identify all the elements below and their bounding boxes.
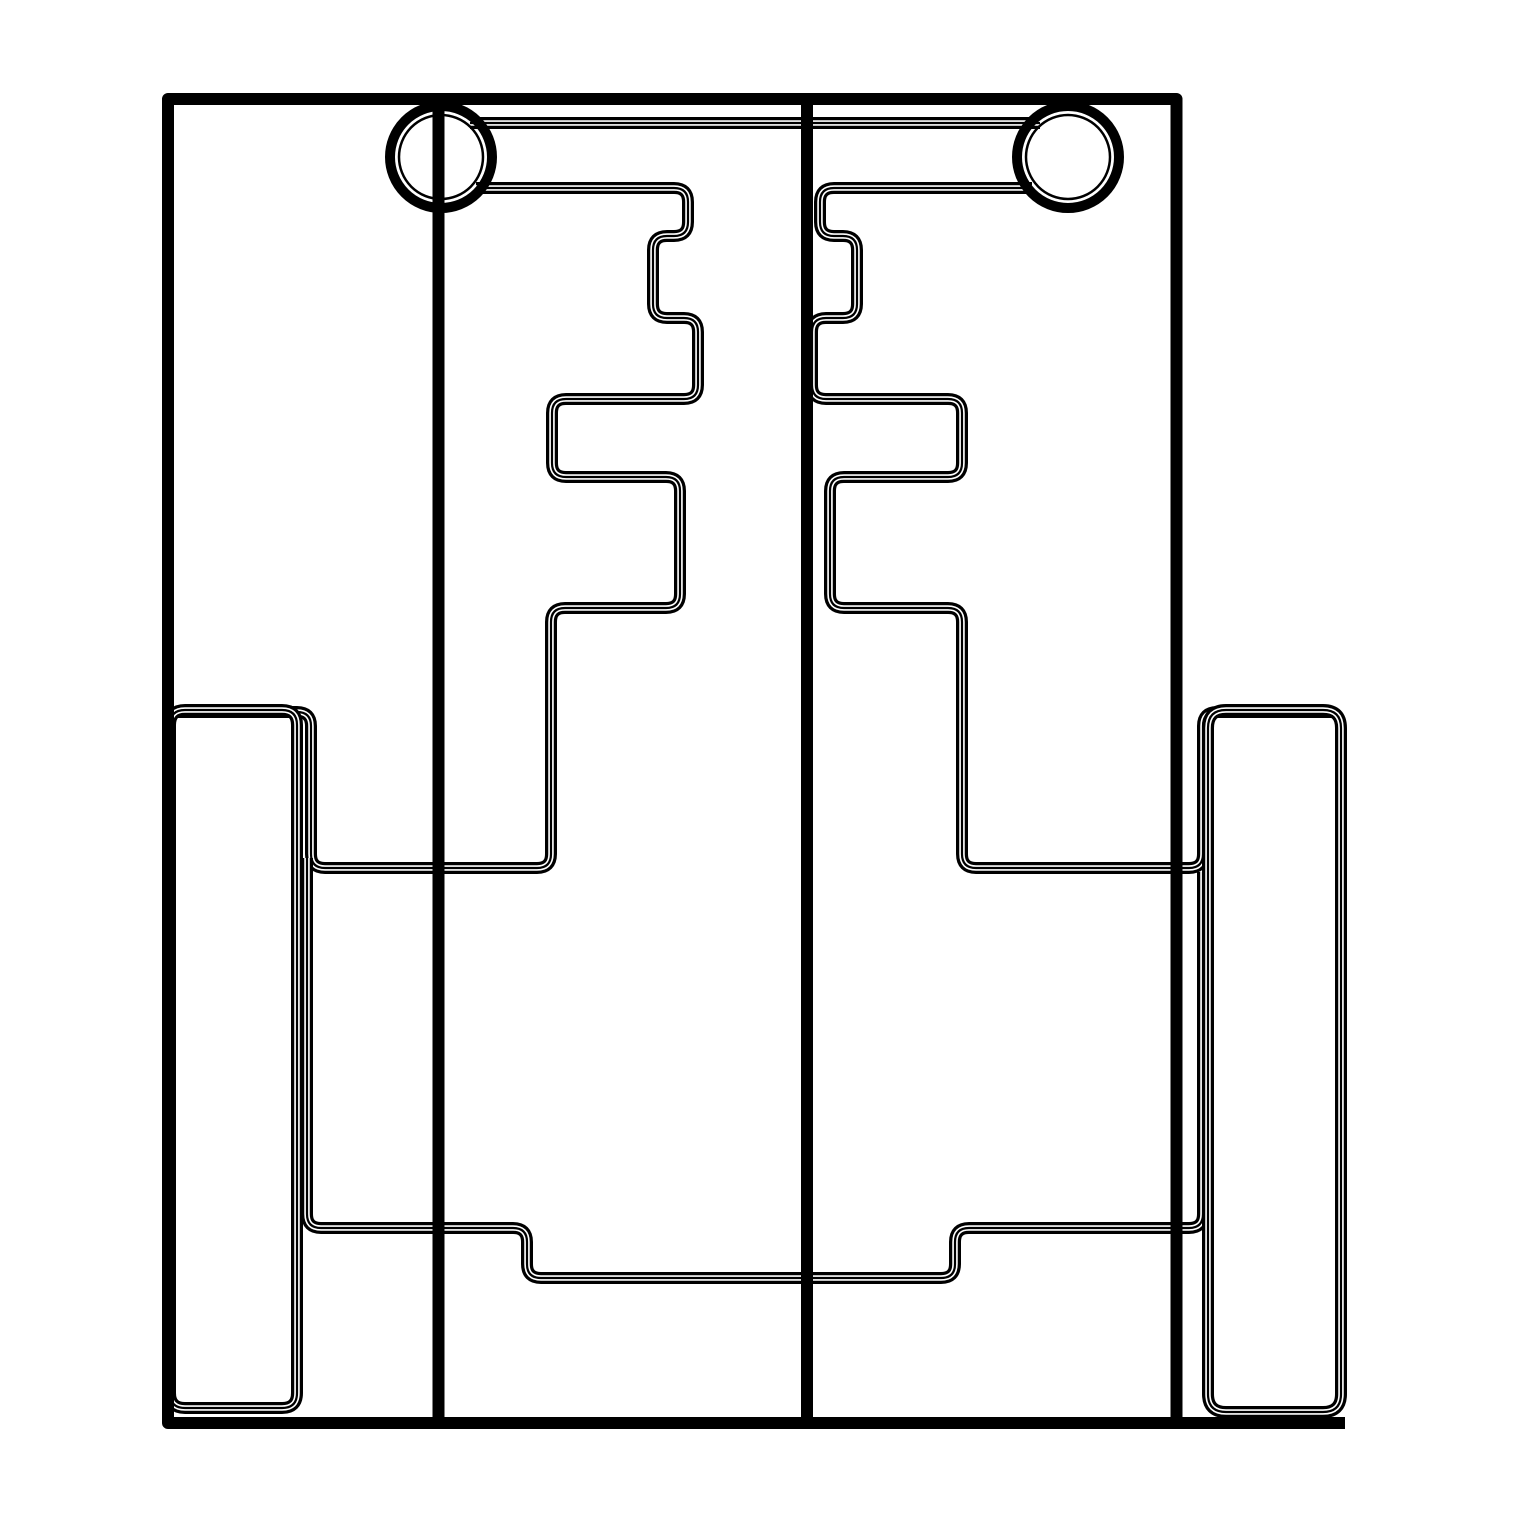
right-comb-plate-channel — [812, 188, 1334, 868]
left-skid-channel — [170, 710, 297, 1408]
right-wheel-inner-ring — [1026, 115, 1110, 199]
drawing-canvas — [0, 0, 1519, 1519]
right-skid-channel — [1208, 710, 1341, 1412]
technical-drawing — [0, 0, 1519, 1519]
left-skid — [170, 710, 297, 1408]
right-wheel-outer-ring — [1017, 106, 1119, 208]
right-comb-plate-hairline — [812, 188, 1334, 868]
corner-flag — [1170, 93, 1344, 369]
right-skid-hairline — [1208, 710, 1341, 1412]
right-skid — [1208, 710, 1341, 1412]
right-comb-plate — [812, 188, 1334, 868]
left-skid-hairline — [170, 710, 297, 1408]
